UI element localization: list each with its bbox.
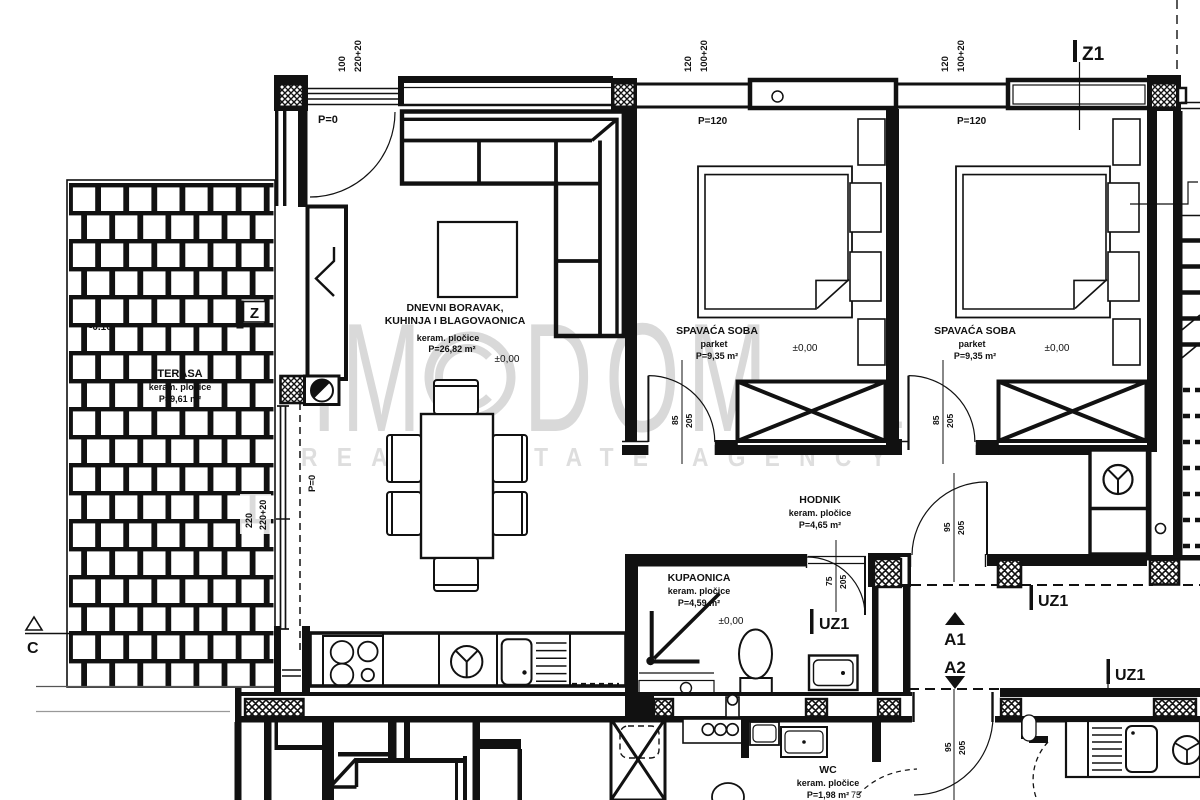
svg-text:100: 100 [337, 56, 348, 72]
svg-text:HODNIK: HODNIK [799, 494, 841, 506]
svg-text:P=26,82 m²: P=26,82 m² [428, 344, 475, 354]
svg-text:±0,00: ±0,00 [719, 616, 744, 627]
svg-text:P=9,61 m²: P=9,61 m² [159, 394, 201, 404]
svg-text:85: 85 [670, 415, 680, 425]
svg-text:UZ1: UZ1 [1038, 593, 1068, 610]
svg-text:205: 205 [684, 414, 694, 428]
svg-text:95: 95 [942, 522, 952, 532]
svg-text:P=1,98 m²: P=1,98 m² [807, 790, 849, 800]
svg-text:SPAVAĆA SOBA: SPAVAĆA SOBA [934, 324, 1016, 337]
svg-text:205: 205 [945, 414, 955, 428]
svg-text:P=0: P=0 [318, 114, 338, 126]
svg-text:205: 205 [838, 575, 848, 589]
svg-text:120: 120 [940, 56, 951, 72]
svg-text:keram. pločice: keram. pločice [668, 586, 731, 596]
svg-text:220: 220 [244, 513, 254, 528]
svg-text:keram. pločice: keram. pločice [149, 382, 212, 392]
svg-text:100+20: 100+20 [956, 40, 967, 72]
svg-text:keram. pločice: keram. pločice [417, 333, 480, 343]
svg-text:WC: WC [819, 764, 837, 776]
svg-text:parket: parket [700, 339, 727, 349]
svg-text:parket: parket [958, 339, 985, 349]
svg-text:UZ1: UZ1 [1115, 667, 1145, 684]
svg-text:P=120: P=120 [957, 116, 987, 127]
svg-text:P=9,35 m²: P=9,35 m² [696, 351, 738, 361]
svg-text:P=0: P=0 [307, 475, 318, 492]
svg-text:TERASA: TERASA [157, 368, 202, 380]
svg-text:keram. pločice: keram. pločice [797, 778, 860, 788]
svg-text:keram. pločice: keram. pločice [789, 508, 852, 518]
svg-text:C: C [27, 640, 39, 657]
svg-text:120: 120 [683, 56, 694, 72]
svg-text:±0,00: ±0,00 [495, 354, 520, 365]
svg-text:75: 75 [851, 790, 861, 800]
svg-text:-0.10: -0.10 [89, 322, 112, 333]
svg-text:100+20: 100+20 [699, 40, 710, 72]
svg-text:P=4,65 m²: P=4,65 m² [799, 520, 841, 530]
svg-text:220+20: 220+20 [353, 40, 364, 72]
svg-text:220+20: 220+20 [258, 500, 268, 530]
svg-text:Z: Z [250, 305, 259, 322]
svg-text:P=9,35 m²: P=9,35 m² [954, 351, 996, 361]
svg-text:A1: A1 [944, 630, 966, 649]
svg-text:P=120: P=120 [698, 116, 728, 127]
svg-text:UZ1: UZ1 [819, 616, 849, 633]
svg-text:±0,00: ±0,00 [793, 343, 818, 354]
svg-text:205: 205 [956, 521, 966, 535]
svg-text:75: 75 [824, 576, 834, 586]
svg-text:A2: A2 [944, 658, 966, 677]
svg-text:±0,00: ±0,00 [1045, 343, 1070, 354]
svg-text:85: 85 [931, 415, 941, 425]
svg-text:95: 95 [943, 742, 953, 752]
svg-text:KUPAONICA: KUPAONICA [668, 572, 731, 584]
svg-text:KUHINJA I BLAGOVAONICA: KUHINJA I BLAGOVAONICA [385, 315, 526, 327]
svg-text:DNEVNI BORAVAK,: DNEVNI BORAVAK, [406, 302, 503, 314]
svg-text:SPAVAĆA SOBA: SPAVAĆA SOBA [676, 324, 758, 337]
svg-text:205: 205 [957, 741, 967, 755]
svg-text:P=4,59 m²: P=4,59 m² [678, 598, 720, 608]
svg-text:Z1: Z1 [1082, 44, 1105, 65]
